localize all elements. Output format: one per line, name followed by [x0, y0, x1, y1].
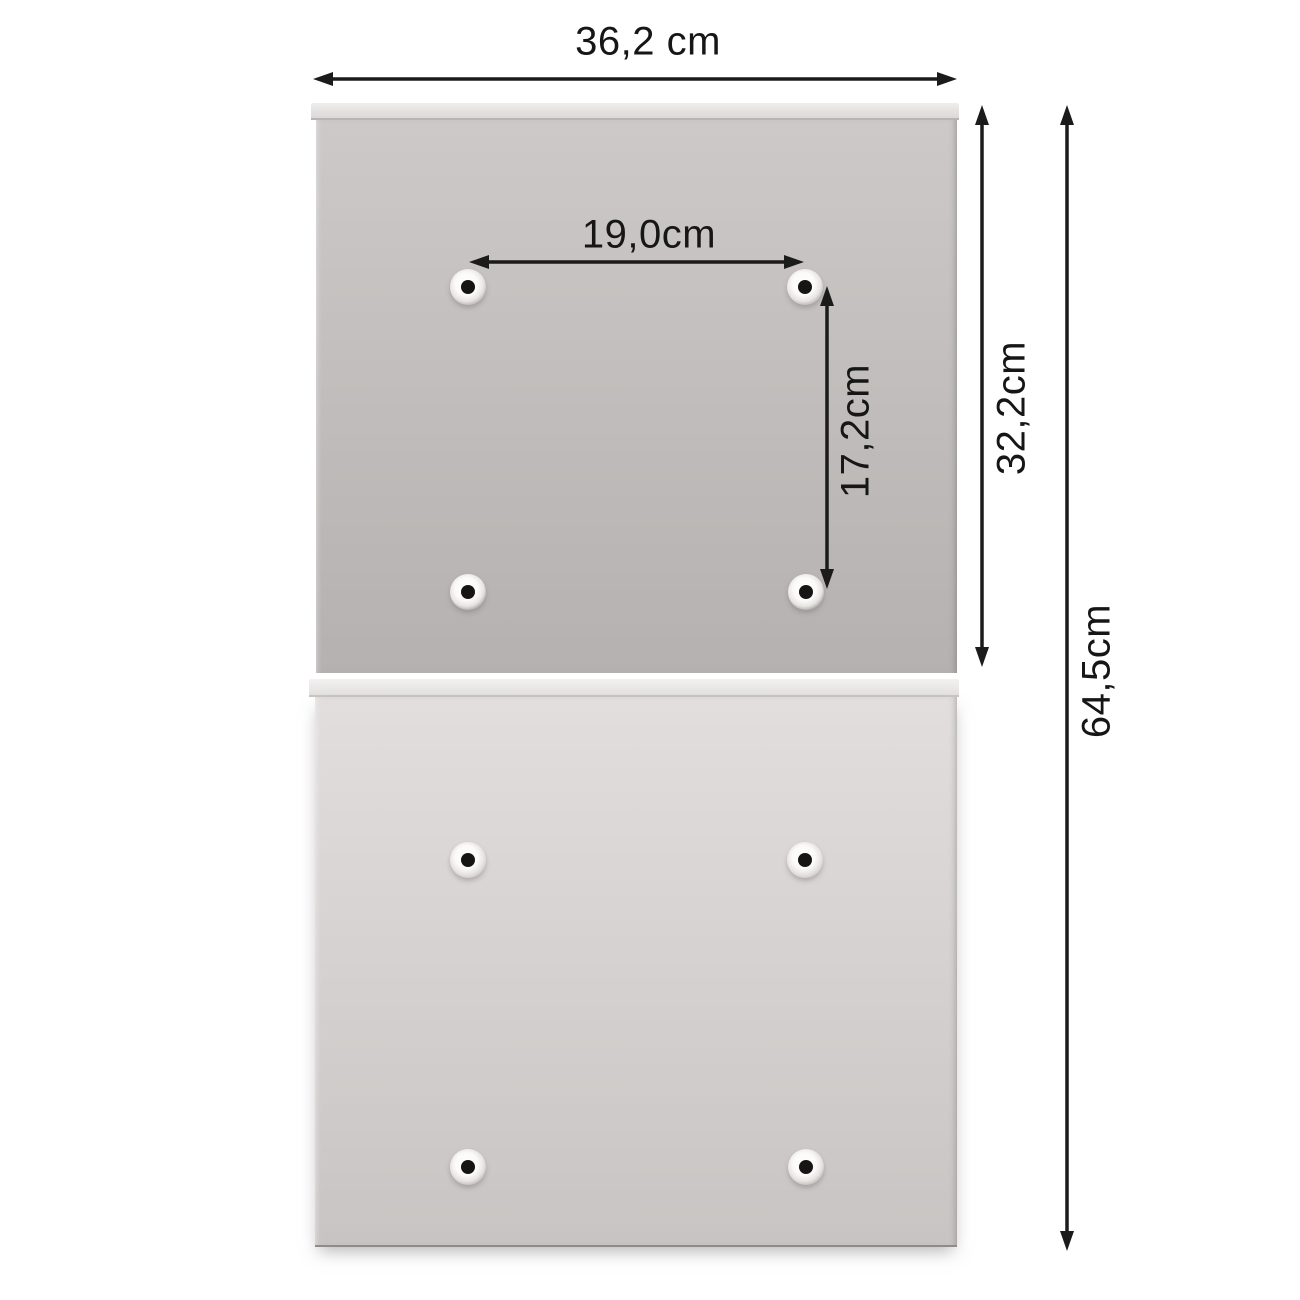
screw-hole-dot: [461, 853, 475, 867]
screw-hole-dot: [799, 585, 813, 599]
screw-hole-dot: [799, 1160, 813, 1174]
screw-hole-dot: [798, 853, 812, 867]
lower-panel: [315, 697, 957, 1247]
screw-hole-lower-bottom-right: [788, 1149, 824, 1185]
upper-panel-height-arrow: [975, 105, 989, 667]
overall-width-label: 36,2 cm: [575, 20, 721, 65]
screw-hole-lower-bottom-left: [450, 1149, 486, 1185]
upper-panel-height-label: 32,2cm: [990, 341, 1035, 475]
screw-hole-upper-top-left: [450, 269, 486, 305]
hole-spacing-horizontal-label: 19,0cm: [582, 213, 716, 258]
screw-hole-dot: [461, 585, 475, 599]
screw-hole-upper-bottom-right: [788, 574, 824, 610]
screw-hole-lower-top-left: [450, 842, 486, 878]
total-height-arrow: [1060, 105, 1074, 1251]
screw-hole-dot: [461, 280, 475, 294]
total-height-label: 64,5cm: [1075, 604, 1120, 738]
hole-spacing-vertical-label: 17,2cm: [834, 364, 879, 498]
lower-panel-top-lip: [309, 679, 959, 697]
screw-hole-upper-top-right: [787, 269, 823, 305]
screw-hole-lower-top-right: [787, 842, 823, 878]
upper-panel-top-lip: [311, 103, 959, 120]
width-arrow: [313, 72, 957, 86]
product-dimension-diagram: 36,2 cm 19,0cm 17,2cm 32,2cm 64,5cm: [0, 0, 1300, 1300]
screw-hole-upper-bottom-left: [450, 574, 486, 610]
screw-hole-dot: [798, 280, 812, 294]
screw-hole-dot: [461, 1160, 475, 1174]
